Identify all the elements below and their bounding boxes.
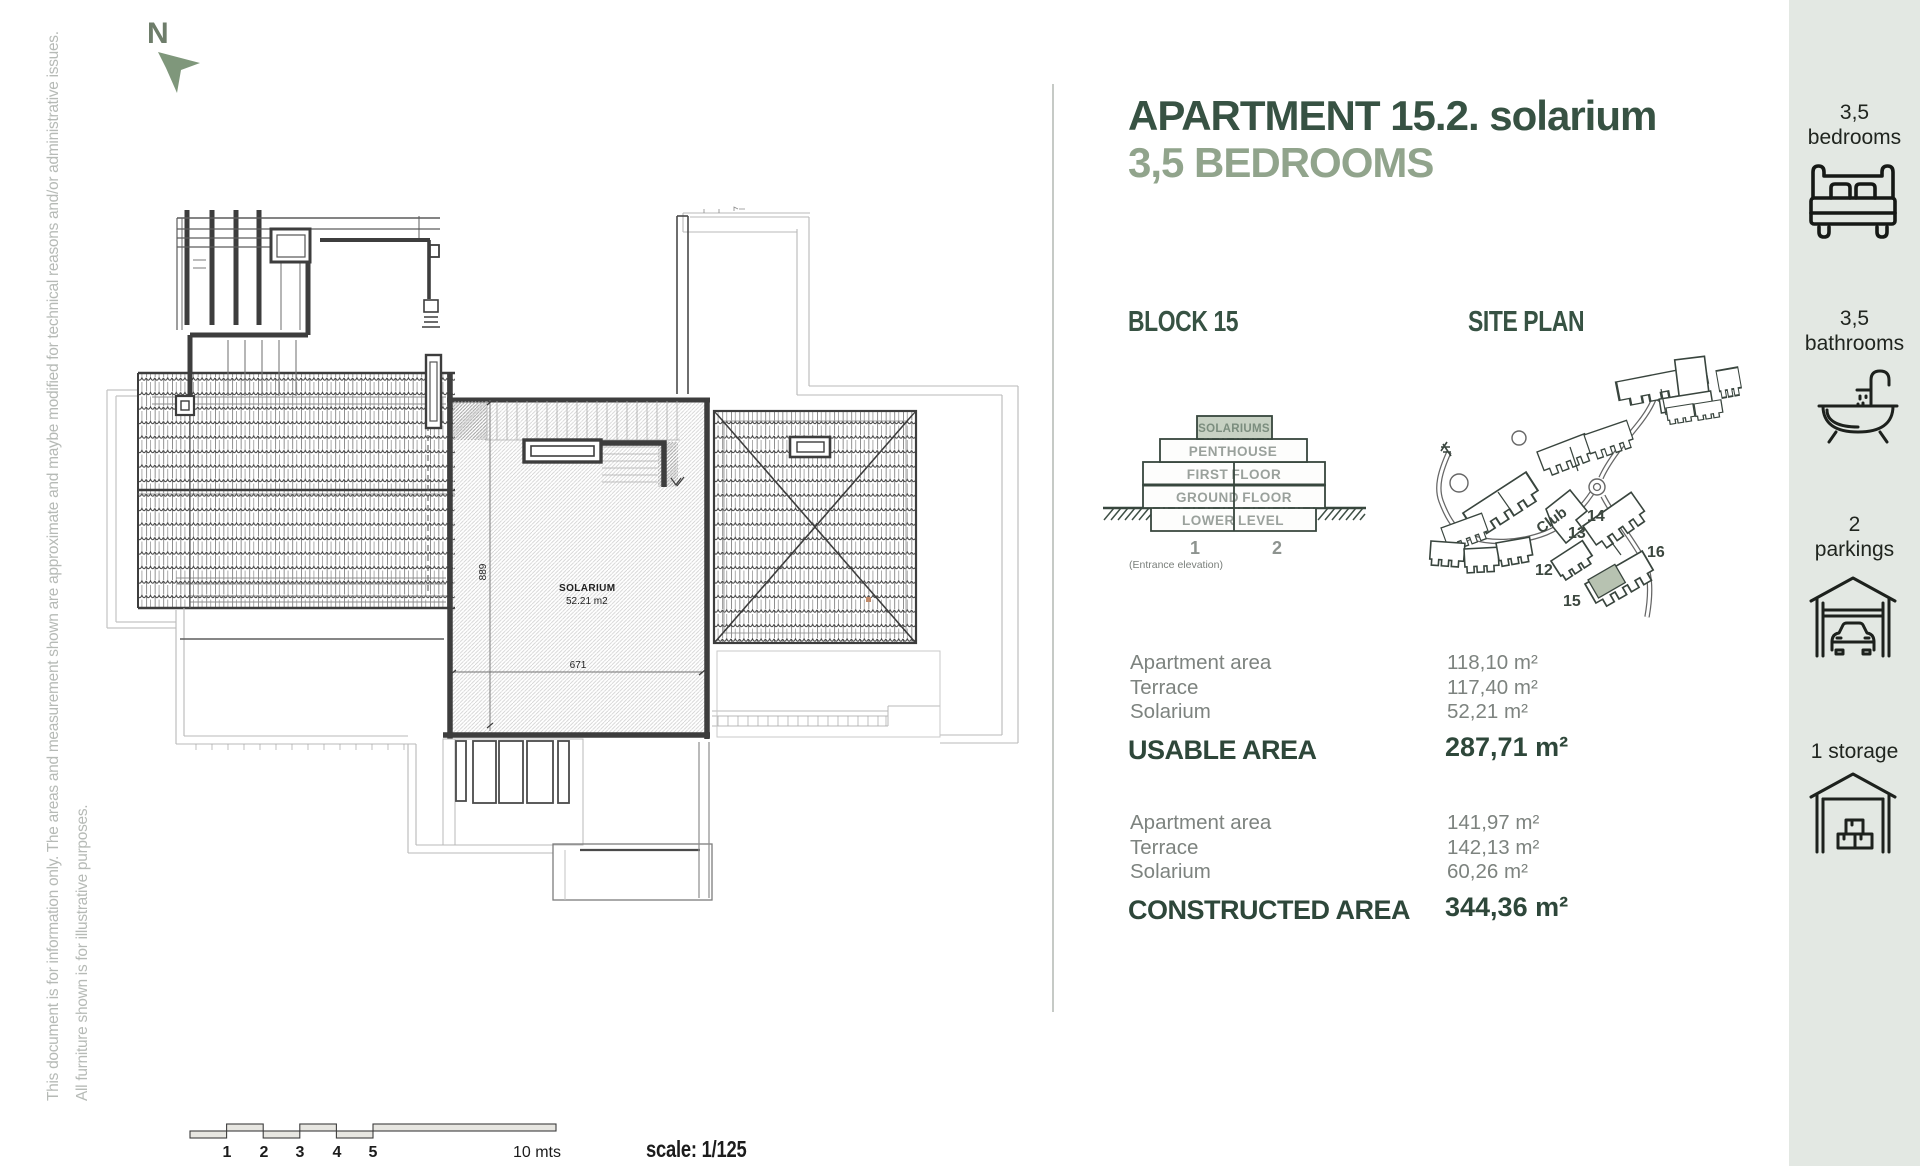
svg-text:N: N [147, 17, 169, 50]
svg-text:13: 13 [1568, 525, 1586, 542]
svg-text:SOLARIUM: SOLARIUM [559, 583, 616, 594]
svg-text:12: 12 [1535, 562, 1553, 579]
svg-text:16: 16 [1647, 544, 1665, 561]
svg-text:PENTHOUSE: PENTHOUSE [1189, 444, 1278, 459]
svg-text:2: 2 [1272, 538, 1282, 558]
svg-text:SOLARIUMS: SOLARIUMS [1198, 423, 1270, 435]
svg-text:10 mts: 10 mts [513, 1144, 561, 1161]
svg-text:1: 1 [1190, 538, 1200, 558]
svg-text:52.21 m2: 52.21 m2 [566, 596, 608, 607]
svg-text:14: 14 [1587, 508, 1605, 525]
svg-text:2: 2 [260, 1144, 269, 1161]
svg-text:4: 4 [333, 1144, 342, 1161]
svg-text:5: 5 [369, 1144, 378, 1161]
svg-text:3: 3 [296, 1144, 305, 1161]
svg-text:1: 1 [223, 1144, 232, 1161]
svg-text:LOWER LEVEL: LOWER LEVEL [1182, 513, 1284, 528]
svg-text:15: 15 [1563, 593, 1581, 610]
svg-text:889: 889 [478, 563, 489, 580]
svg-text:671: 671 [570, 660, 587, 671]
svg-text:(Entrance elevation): (Entrance elevation) [1129, 559, 1223, 571]
